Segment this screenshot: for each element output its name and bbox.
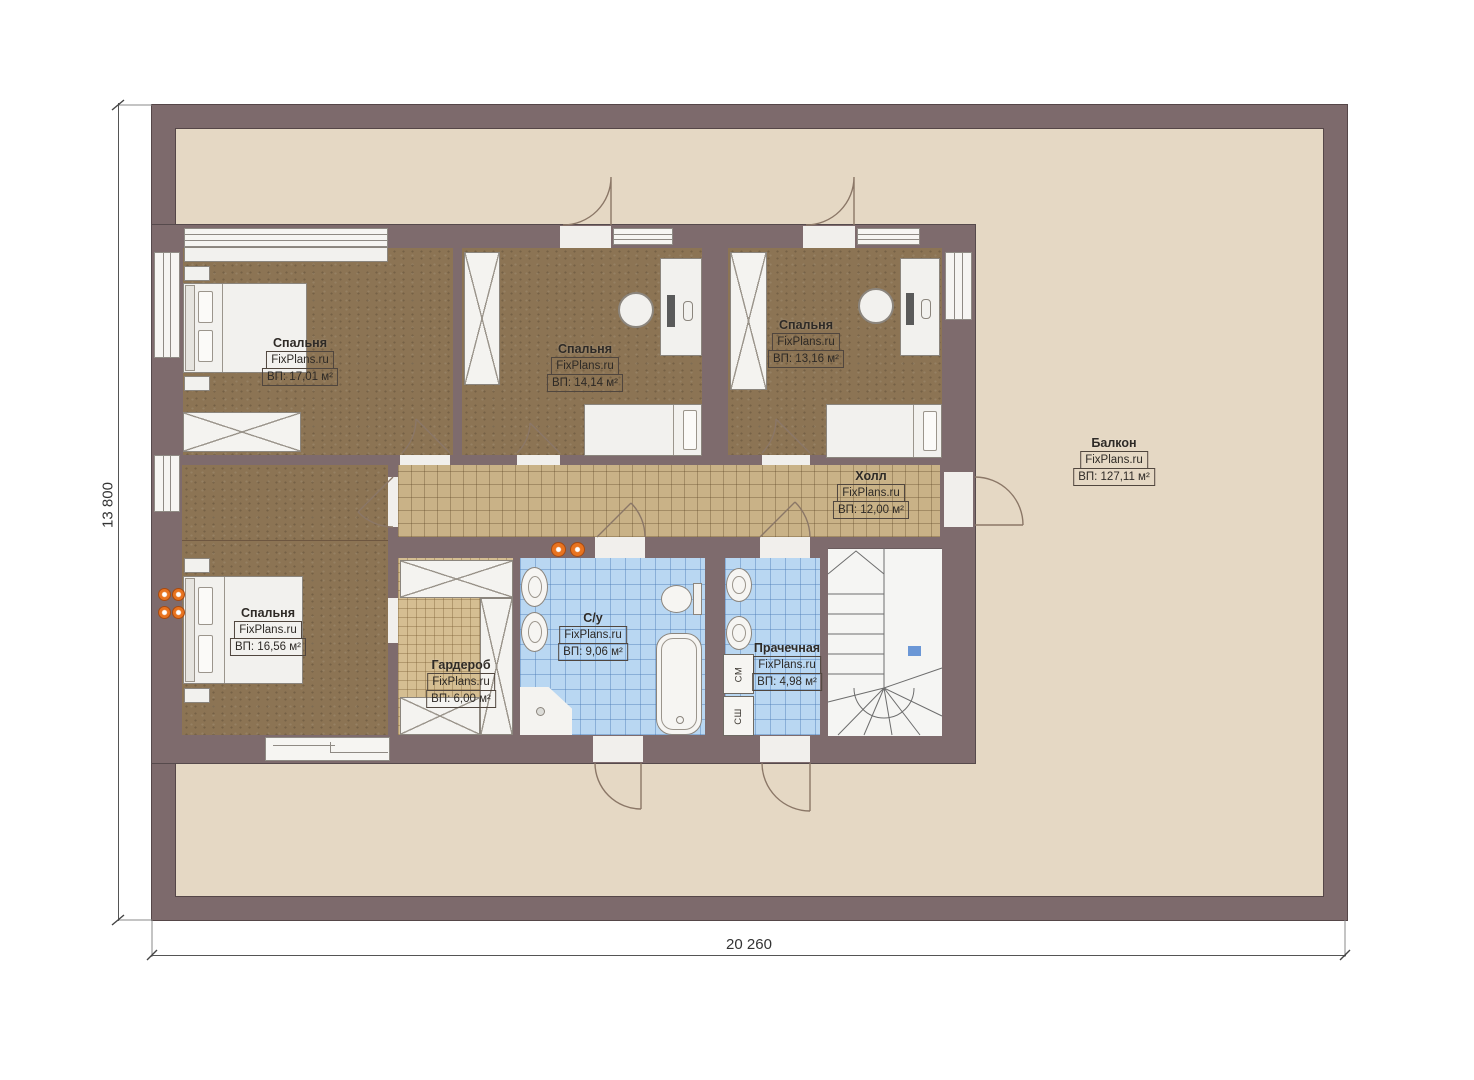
room-area: ВП: 4,98 м² [752, 673, 822, 691]
radiator-dot [158, 606, 171, 619]
wardrobe-cabinet [464, 252, 500, 385]
window-left-bedroom-4 [154, 455, 180, 512]
room-area: ВП: 13,16 м² [768, 350, 844, 368]
washing-machine-label: СМ [733, 666, 744, 682]
desk [660, 258, 702, 356]
computer-monitor [667, 295, 675, 327]
single-bed [584, 404, 702, 456]
room-name: Спальня [273, 336, 327, 350]
door-opening-bedroom-4 [388, 477, 398, 527]
watermark: FixPlans.ru [559, 626, 627, 644]
wardrobe-cabinet [730, 252, 767, 390]
window-top-bedroom-2 [613, 228, 673, 245]
watermark: FixPlans.ru [427, 673, 495, 691]
radiator-dot [172, 606, 185, 619]
nightstand [184, 266, 210, 281]
watermark: FixPlans.ru [551, 357, 619, 375]
room-name: Спальня [241, 606, 295, 620]
washbasin [726, 568, 752, 602]
room-name: Гардероб [431, 658, 490, 672]
door-opening-laundry [760, 537, 810, 558]
room-area: ВП: 17,01 м² [262, 368, 338, 386]
blanket-line [913, 405, 914, 457]
drying-machine: СШ [723, 696, 754, 736]
wardrobe-cabinet [400, 560, 513, 598]
watermark: FixPlans.ru [1080, 451, 1148, 469]
window-left-bedroom-1 [154, 252, 180, 358]
headboard [185, 285, 195, 371]
stair-marker [908, 646, 921, 656]
watermark: FixPlans.ru [234, 621, 302, 639]
room-name: Прачечная [754, 641, 820, 655]
nightstand [184, 688, 210, 703]
staircase-floor [828, 548, 942, 736]
keyboard [921, 299, 931, 319]
room-label-bedroom-4: Спальня FixPlans.ru ВП: 16,56 м² [230, 606, 306, 656]
room-label-bedroom-2: Спальня FixPlans.ru ВП: 14,14 м² [547, 342, 623, 392]
computer-monitor [906, 293, 914, 325]
drying-machine-label: СШ [733, 708, 744, 725]
room-area: ВП: 127,11 м² [1073, 468, 1155, 486]
window-top-bedroom-1 [184, 228, 388, 247]
room-label-balcony: Балкон FixPlans.ru ВП: 127,11 м² [1073, 436, 1155, 486]
toilet [661, 585, 692, 613]
headboard [185, 578, 195, 682]
room-label-bedroom-3: Спальня FixPlans.ru ВП: 13,16 м² [768, 318, 844, 368]
towel-radiator-dot [570, 542, 585, 557]
washbasin [521, 612, 548, 652]
washing-machine: СМ [723, 654, 754, 694]
room-area: ВП: 16,56 м² [230, 638, 306, 656]
watermark: FixPlans.ru [837, 484, 905, 502]
room-name: Спальня [558, 342, 612, 356]
wardrobe-cabinet [183, 412, 301, 452]
dimension-value-vertical: 13 800 [100, 482, 117, 528]
keyboard [683, 301, 693, 321]
room-name: Спальня [779, 318, 833, 332]
blanket-line [222, 284, 223, 372]
room-label-hall: Холл FixPlans.ru ВП: 12,00 м² [833, 469, 909, 519]
floor-transition-line [182, 540, 388, 541]
room-area: ВП: 12,00 м² [833, 501, 909, 519]
single-bed [826, 404, 942, 458]
room-label-bedroom-1: Спальня FixPlans.ru ВП: 17,01 м² [262, 336, 338, 386]
door-opening-bedroom-2-balcony [560, 226, 611, 248]
pillow [683, 410, 697, 450]
towel-radiator-dot [551, 542, 566, 557]
window-ledge [184, 247, 388, 262]
radiator-dot [158, 588, 171, 601]
watermark: FixPlans.ru [753, 656, 821, 674]
sliding-sash-line [273, 745, 335, 746]
blanket-line [673, 405, 674, 455]
toilet-tank [693, 583, 702, 615]
room-area: ВП: 6,00 м² [426, 690, 496, 708]
floor-plan: СМ СШ [0, 0, 1474, 1080]
door-opening-hall-balcony [944, 472, 973, 527]
room-name: Балкон [1091, 436, 1136, 450]
pillow [198, 635, 213, 673]
window-bottom-bedroom-4 [265, 737, 390, 761]
desk-chair [858, 288, 894, 324]
room-area: ВП: 9,06 м² [558, 643, 628, 661]
radiator-dot [172, 588, 185, 601]
nightstand [184, 558, 210, 573]
door-opening-bedroom-3 [762, 455, 810, 465]
room-name: Холл [855, 469, 886, 483]
window-right-bedroom-3 [945, 252, 972, 320]
door-opening-bathroom-balcony [593, 736, 643, 762]
pillow [923, 411, 937, 451]
door-opening-bedroom-3-balcony [803, 226, 855, 248]
room-label-laundry: Прачечная FixPlans.ru ВП: 4,98 м² [752, 641, 822, 691]
room-label-wardrobe: Гардероб FixPlans.ru ВП: 6,00 м² [426, 658, 496, 708]
door-opening-bedroom-1 [400, 455, 450, 465]
door-opening-wardrobe [388, 598, 398, 643]
watermark: FixPlans.ru [266, 351, 334, 369]
pillow [198, 587, 213, 625]
bathtub [656, 633, 702, 735]
dimension-line-vertical [118, 103, 119, 921]
dimension-value-horizontal: 20 260 [726, 936, 772, 953]
pillow [198, 330, 213, 362]
blanket-line [224, 577, 225, 683]
desk-chair [618, 292, 654, 328]
room-label-bathroom: С/у FixPlans.ru ВП: 9,06 м² [558, 611, 628, 661]
sliding-sash-tick [330, 742, 331, 753]
pillow [198, 291, 213, 323]
door-opening-bathroom [595, 537, 645, 558]
washbasin [726, 616, 752, 650]
room-area: ВП: 14,14 м² [547, 374, 623, 392]
watermark: FixPlans.ru [772, 333, 840, 351]
sliding-sash-line [330, 752, 388, 753]
dimension-line-horizontal [152, 955, 1346, 956]
washbasin [521, 567, 548, 607]
window-top-bedroom-3 [857, 228, 920, 245]
door-opening-laundry-balcony [760, 736, 810, 762]
room-name: С/у [583, 611, 602, 625]
nightstand [184, 376, 210, 391]
desk [900, 258, 940, 356]
door-opening-bedroom-2 [517, 455, 560, 465]
